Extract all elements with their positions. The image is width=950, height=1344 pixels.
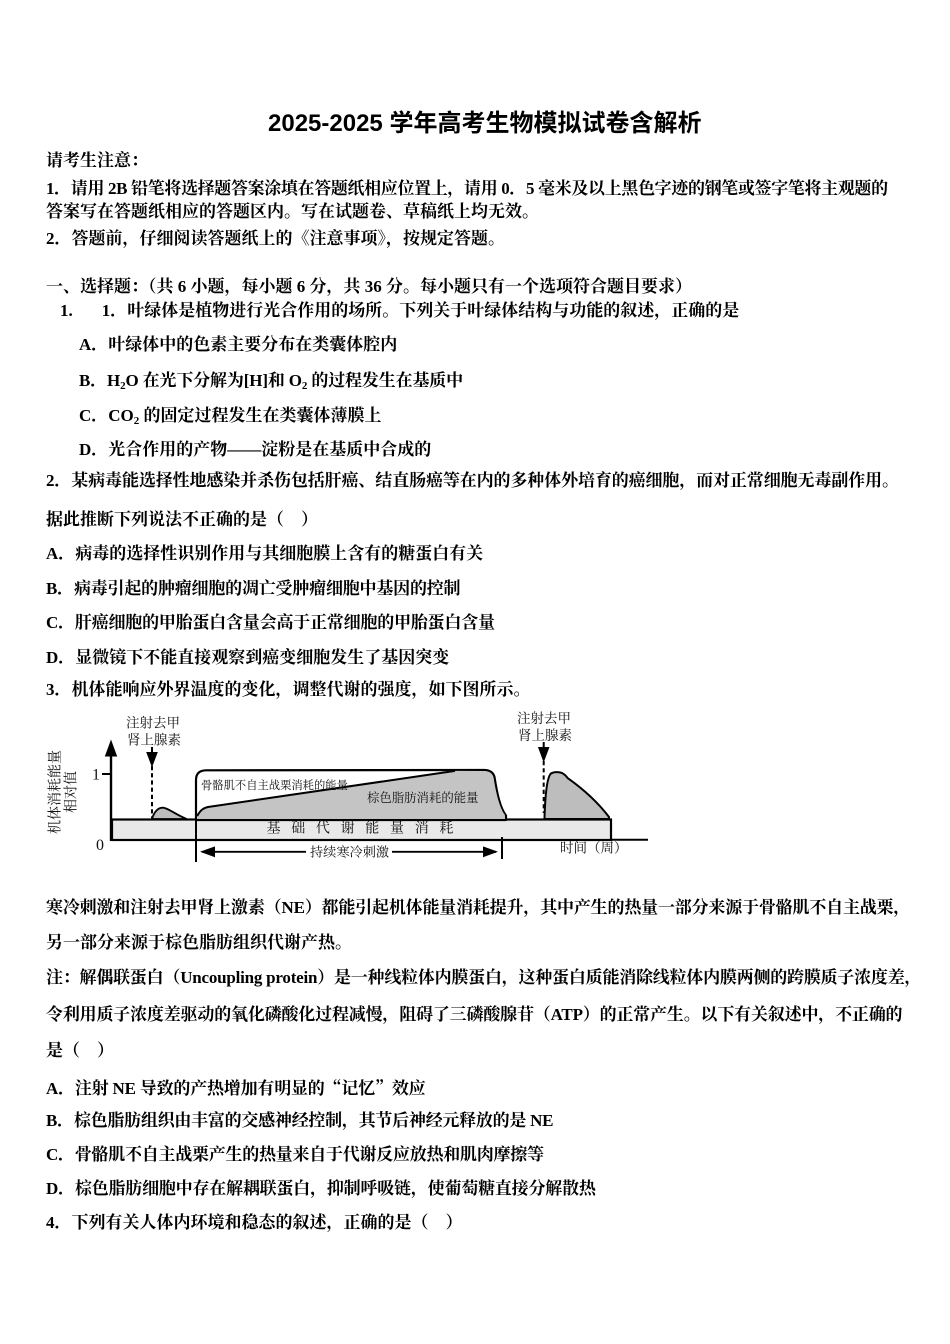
svg-text:机体消耗能量: 机体消耗能量	[47, 750, 64, 834]
svg-text:注射去甲: 注射去甲	[517, 710, 571, 726]
svg-text:1: 1	[92, 767, 100, 784]
svg-text:肾上腺素: 肾上腺素	[518, 727, 572, 743]
svg-text:棕色脂肪消耗的能量: 棕色脂肪消耗的能量	[367, 790, 479, 805]
svg-text:注射去甲: 注射去甲	[126, 715, 180, 731]
svg-text:肾上腺素: 肾上腺素	[127, 732, 181, 748]
svg-text:时间（周）: 时间（周）	[560, 841, 628, 856]
svg-text:相对值: 相对值	[63, 771, 80, 813]
svg-text:基础代谢能量消耗: 基础代谢能量消耗	[267, 820, 465, 837]
svg-text:持续寒冷刺激: 持续寒冷刺激	[310, 844, 389, 860]
svg-text:骨骼肌不自主战栗消耗的能量: 骨骼肌不自主战栗消耗的能量	[201, 778, 348, 792]
svg-text:0: 0	[96, 837, 104, 854]
